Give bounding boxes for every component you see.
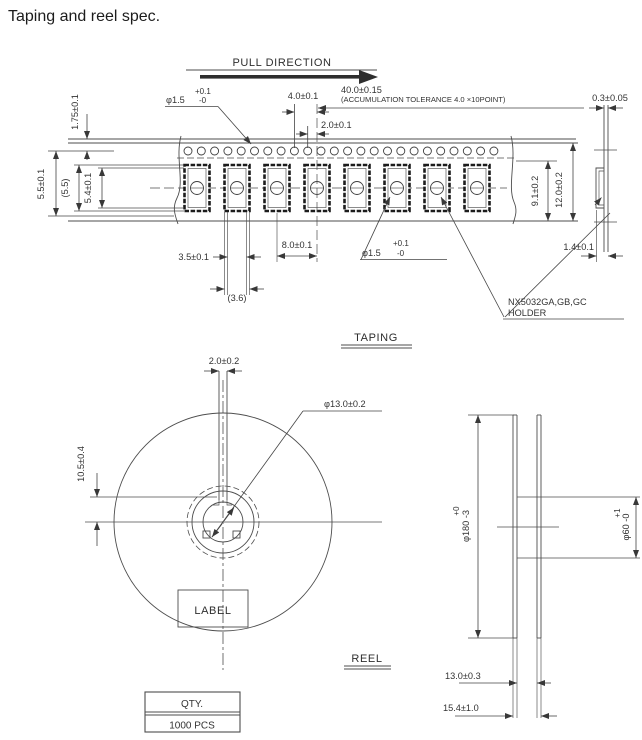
dim-text: 2.0±0.2 <box>209 356 240 366</box>
dim-text: φ1.5 <box>166 95 185 105</box>
reel-slot <box>213 371 232 505</box>
dim-text: 0.3±0.05 <box>592 93 628 103</box>
dim-sprocket-hole-dia: φ1.5 +0.1 -0 <box>165 87 251 144</box>
sprocket-hole <box>437 147 445 155</box>
pull-direction-label: PULL DIRECTION <box>232 57 331 69</box>
pull-direction-arrow-icon <box>359 70 378 84</box>
sprocket-hole <box>224 147 232 155</box>
sprocket-hole <box>410 147 418 155</box>
reel-flanges <box>513 415 541 638</box>
dim-text: 9.1±0.2 <box>530 176 540 207</box>
tape-break-right <box>511 136 516 224</box>
dim-tol-plus: +0 <box>452 506 461 516</box>
sprocket-hole <box>330 147 338 155</box>
dim-tol-minus: -0 <box>397 249 405 258</box>
dim-text: 4.0±0.1 <box>288 91 319 101</box>
dim-hole-edge-to-bottom: 9.1±0.2 <box>516 161 557 221</box>
qty-value: 1000 PCS <box>169 721 215 732</box>
dim-text: φ180 -3 <box>461 510 471 542</box>
dim-text: 1.75±0.1 <box>70 94 80 130</box>
sprocket-hole <box>197 147 205 155</box>
dim-tape-width: 12.0±0.2 <box>554 143 573 221</box>
sprocket-hole <box>490 147 498 155</box>
sprocket-hole <box>317 147 325 155</box>
sprocket-hole <box>264 147 272 155</box>
dim-reel-outer-dia: φ180 -3 +0 <box>452 415 514 638</box>
sprocket-hole <box>290 147 298 155</box>
dim-text: 2.0±0.1 <box>321 120 352 130</box>
sprocket-hole <box>397 147 405 155</box>
sprocket-hole <box>450 147 458 155</box>
dim-note: (ACCUMULATION TOLERANCE 4.0 ×10POINT) <box>341 95 506 104</box>
reel-hub-side <box>497 497 640 558</box>
dim-edge-to-hole: 1.75±0.1 <box>48 94 114 160</box>
pull-direction: PULL DIRECTION <box>186 57 378 84</box>
sprocket-hole <box>477 147 485 155</box>
reel-label: REEL <box>351 653 382 665</box>
sprocket-hole <box>251 147 259 155</box>
dim-text: 3.5±0.1 <box>178 252 209 262</box>
dim-text: φ13.0±0.2 <box>324 399 366 409</box>
sprocket-hole <box>304 147 312 155</box>
dim-text: 12.0±0.2 <box>554 172 564 208</box>
dim-slot-depth: 10.5±0.4 <box>76 446 217 546</box>
dim-hole-to-center: 5.5±0.1 <box>36 151 174 216</box>
section-label-reel: REEL <box>344 653 391 669</box>
qty-table: QTY. 1000 PCS <box>145 692 240 732</box>
dim-ref-text: (3.6) <box>228 293 247 303</box>
dim-text: φ60 -0 <box>621 514 631 541</box>
dim-tol-plus: +0.1 <box>393 239 409 248</box>
dim-reel-widths: 13.0±0.3 15.4±1.0 <box>443 638 557 718</box>
sprocket-hole <box>237 147 245 155</box>
reel-side-view: φ180 -3 +0 φ60 -0 +1 13.0±0.3 15.4±1.0 <box>443 415 640 718</box>
taping-label: TAPING <box>354 332 398 344</box>
sprocket-hole <box>211 147 219 155</box>
dim-tol-plus: +1 <box>613 508 622 518</box>
taping-drawing: PULL DIRECTION φ1.5 +0.1 -0 4. <box>36 57 628 348</box>
dim-pocket-width: 3.5±0.1 (3.6) <box>178 212 264 303</box>
dim-tol-plus: +0.1 <box>195 87 211 96</box>
dim-hub-hole: φ13.0±0.2 <box>212 399 382 537</box>
sprocket-hole <box>370 147 378 155</box>
pull-direction-arrow-shaft <box>200 75 360 79</box>
reel-front-view: 2.0±0.2 φ13.0±0.2 10.5±0.4 LABEL REEL <box>76 356 391 670</box>
dim-text: φ1.5 <box>362 248 381 258</box>
dim-reel-hub-dia: φ60 -0 +1 <box>613 497 636 558</box>
sprocket-hole <box>463 147 471 155</box>
dim-pocket-pitch: 8.0±0.1 <box>277 213 317 262</box>
dim-accumulation: 40.0±0.15 (ACCUMULATION TOLERANCE 4.0 ×1… <box>318 85 584 108</box>
dim-tol-minus: -0 <box>199 96 207 105</box>
holder-label-line2: HOLDER <box>508 308 547 318</box>
dim-text: 10.5±0.4 <box>76 446 86 482</box>
dim-outer-text: 15.4±1.0 <box>443 703 479 713</box>
dim-slot-width: 2.0±0.2 <box>204 356 242 371</box>
sprocket-hole <box>184 147 192 155</box>
sprocket-hole <box>357 147 365 155</box>
dim-text: 40.0±0.15 <box>341 85 382 95</box>
qty-header: QTY. <box>181 699 203 710</box>
sprocket-hole <box>423 147 431 155</box>
sprocket-hole <box>277 147 285 155</box>
dim-pocket-depth: 1.4±0.1 <box>563 210 623 262</box>
dim-text: 5.4±0.1 <box>83 173 93 204</box>
taping-reel-spec-page: Taping and reel spec. PULL DIRECTION φ1.… <box>0 0 642 740</box>
page-title: Taping and reel spec. <box>8 8 160 25</box>
section-label-taping: TAPING <box>341 332 412 348</box>
holder-label-line1: NX5032GA,GB,GC <box>508 297 587 307</box>
sprocket-hole <box>344 147 352 155</box>
dim-inner-text: 13.0±0.3 <box>445 671 481 681</box>
taping-reel-spec-drawing: Taping and reel spec. PULL DIRECTION φ1.… <box>0 0 642 740</box>
sprocket-holes <box>184 147 498 155</box>
tape-section-view <box>594 105 617 252</box>
dim-text: 8.0±0.1 <box>282 240 313 250</box>
label-box-text: LABEL <box>194 605 231 617</box>
reel-label-box: LABEL <box>178 590 248 627</box>
sprocket-hole <box>384 147 392 155</box>
dim-text: (5.5) <box>60 179 70 198</box>
dim-text: 5.5±0.1 <box>36 169 46 200</box>
hub-key-notch <box>203 531 210 538</box>
